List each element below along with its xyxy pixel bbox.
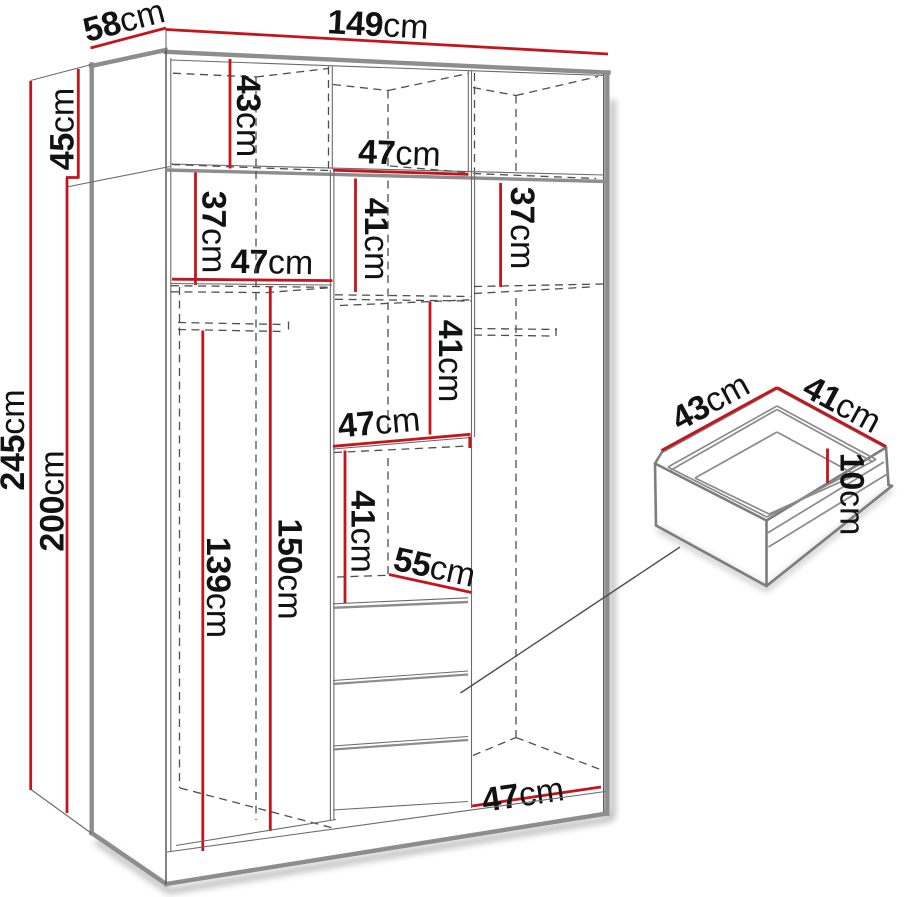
svg-text:41cm: 41cm [344, 490, 382, 573]
svg-text:41cm: 41cm [357, 198, 395, 281]
svg-text:41cm: 41cm [797, 368, 888, 441]
svg-text:245cm: 245cm [0, 389, 32, 490]
svg-text:139cm: 139cm [199, 537, 237, 638]
svg-text:10cm: 10cm [833, 453, 871, 536]
svg-text:41cm: 41cm [431, 320, 469, 403]
svg-text:149cm: 149cm [326, 3, 429, 47]
svg-text:47cm: 47cm [358, 133, 442, 174]
svg-text:43cm: 43cm [229, 75, 267, 158]
svg-text:47cm: 47cm [336, 400, 422, 445]
svg-text:37cm: 37cm [503, 187, 541, 270]
svg-text:200cm: 200cm [33, 450, 71, 551]
svg-text:55cm: 55cm [390, 540, 479, 595]
svg-text:47cm: 47cm [479, 770, 566, 820]
svg-text:43cm: 43cm [665, 366, 756, 439]
svg-text:58cm: 58cm [79, 0, 169, 50]
svg-text:47cm: 47cm [230, 243, 313, 282]
svg-text:45cm: 45cm [44, 88, 82, 171]
svg-text:37cm: 37cm [195, 191, 233, 274]
svg-text:150cm: 150cm [270, 518, 308, 619]
